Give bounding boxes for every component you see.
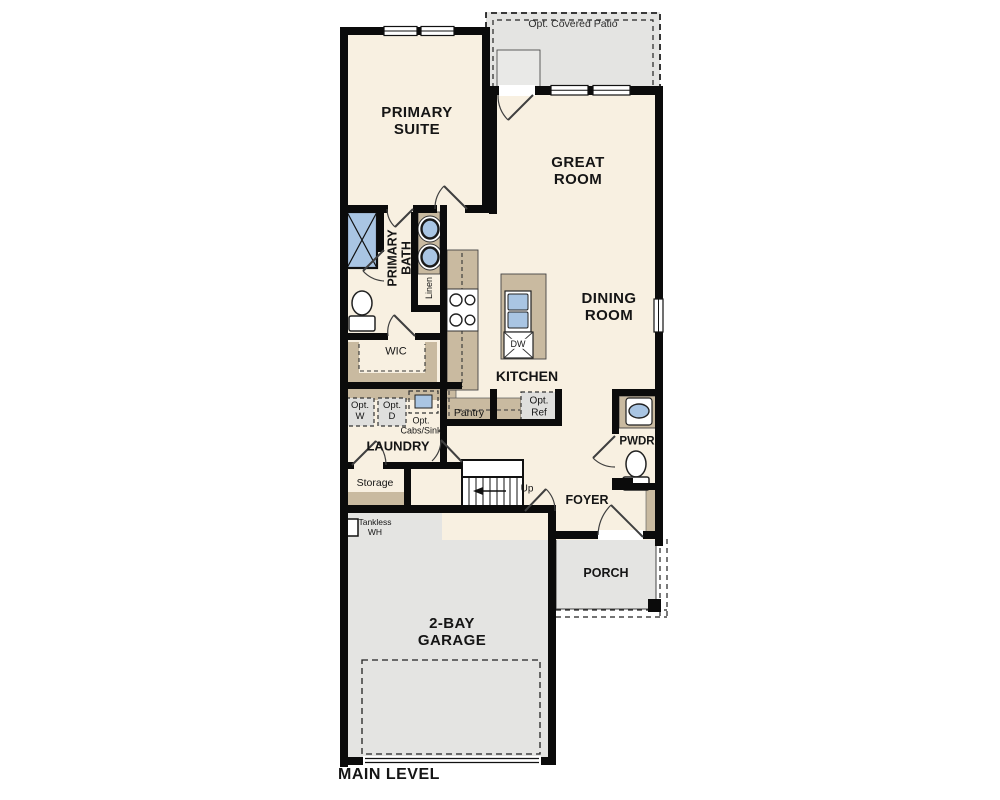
window: [421, 27, 454, 36]
floor-plan: Opt. Covered Patio PRIMARY SUITE GREAT R…: [0, 0, 1000, 800]
island-sink-icon: [505, 291, 531, 332]
floor-plan-drawing: [0, 0, 1000, 800]
label-opt-dryer: Opt. D: [383, 401, 401, 423]
room-label-kitchen: KITCHEN: [496, 368, 558, 384]
label-tankless-wh: Tankless WH: [358, 518, 391, 538]
window: [654, 299, 663, 332]
stairs: [462, 460, 523, 512]
room-label-wic: WIC: [385, 346, 406, 359]
window: [384, 27, 417, 36]
patio-pad: [497, 50, 540, 88]
window: [551, 86, 588, 96]
range-icon: [447, 289, 478, 331]
label-opt-cabs-sink: Opt. Cabs/Sink: [400, 416, 441, 437]
label-opt-washer: Opt. W: [351, 401, 369, 423]
room-label-storage: Storage: [357, 477, 394, 489]
room-label-garage: 2-BAY GARAGE: [418, 615, 486, 650]
room-label-dining-room: DINING ROOM: [582, 290, 637, 325]
room-label-foyer: FOYER: [565, 493, 608, 507]
label-dishwasher: DW: [510, 339, 527, 349]
window: [593, 86, 630, 96]
powder-sink-icon: [626, 398, 652, 425]
room-label-primary-suite: PRIMARY SUITE: [381, 104, 452, 139]
tankless-water-heater-icon: [347, 519, 358, 536]
label-stairs-up: Up: [521, 483, 534, 495]
foyer-wall-feature: [646, 489, 656, 538]
room-label-laundry: LAUNDRY: [366, 440, 429, 455]
room-label-linen: Linen: [424, 277, 434, 299]
room-label-covered-patio: Opt. Covered Patio: [528, 18, 617, 30]
room-label-primary-bath: PRIMARY BATH: [386, 229, 414, 286]
porch-column: [648, 599, 661, 612]
room-label-great-room: GREAT ROOM: [551, 154, 604, 189]
room-label-powder: PWDR: [619, 435, 654, 448]
great-room-floor: [496, 92, 658, 212]
shower-icon: [347, 212, 377, 268]
room-label-porch: PORCH: [583, 566, 628, 580]
room-label-pantry: Pantry: [454, 407, 484, 419]
patio-door-opening: [499, 85, 535, 96]
garage-door-opening: [363, 756, 541, 766]
storage-shelf: [347, 492, 404, 505]
label-opt-refrigerator: Opt. Ref: [530, 396, 549, 419]
plan-title: MAIN LEVEL: [338, 766, 440, 784]
